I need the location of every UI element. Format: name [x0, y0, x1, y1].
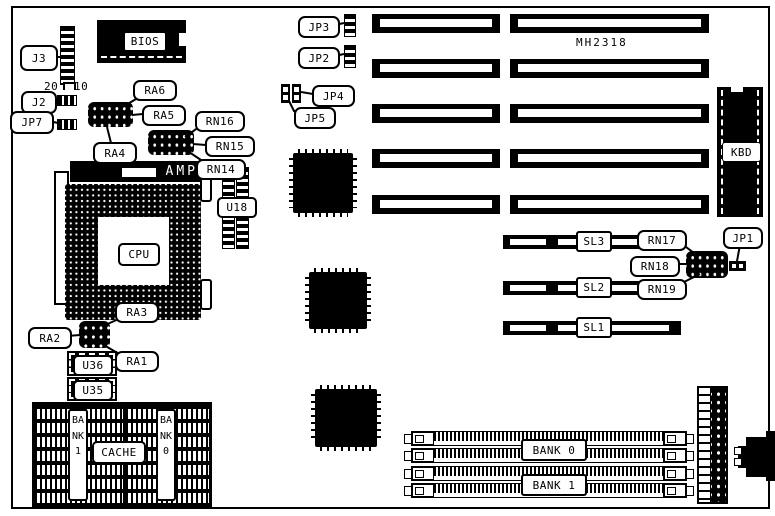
simm-bank0-label-text: BANK 0 [533, 444, 576, 457]
ra1-ra2-ra3-network [79, 321, 110, 348]
jp3-label-text: JP3 [308, 21, 329, 34]
u35-label: U35 [73, 380, 113, 401]
jp4-label: JP4 [312, 85, 355, 107]
power-connector-pins-left [699, 388, 711, 502]
rn14-label-text: RN14 [207, 163, 236, 176]
cpu-socket-key-bottom [200, 279, 212, 310]
bios-notch [179, 33, 186, 46]
zif-handle [122, 168, 156, 177]
simm-bank1-label-text: BANK 1 [533, 479, 576, 492]
simm-bank1-label: BANK 1 [521, 474, 587, 496]
cache-bank0-label: BANK 0 [156, 409, 176, 501]
sl3-label-text: SL3 [583, 235, 604, 248]
rn17-label-text: RN17 [648, 234, 677, 247]
kbd-label-text: KBD [731, 146, 752, 159]
isa-slot-2-left [372, 59, 500, 78]
u35-label-text: U35 [82, 384, 103, 397]
rn19-label-text: RN19 [648, 283, 677, 296]
sl2-label-text: SL2 [583, 281, 604, 294]
cache-label-text: CACHE [101, 446, 137, 459]
bios-label-text: BIOS [131, 35, 160, 48]
sl1-label-text: SL1 [583, 321, 604, 334]
ra2-label: RA2 [28, 327, 72, 349]
j3-label: J3 [20, 45, 58, 71]
ra2-label-text: RA2 [39, 332, 60, 345]
ra4-ra5-ra6-network [88, 102, 133, 127]
sl1-label: SL1 [576, 317, 612, 338]
isa-slot-3-left [372, 104, 500, 123]
chipset-qfp-1 [289, 149, 357, 217]
cpu-label: CPU [118, 243, 160, 266]
isa-slot-4-right [510, 149, 709, 168]
cache-bank1-label: BANK 1 [68, 409, 88, 501]
j2-label-text: J2 [32, 96, 46, 109]
u36-label-text: U36 [82, 359, 103, 372]
rn15-label-text: RN15 [216, 140, 245, 153]
jp3-label: JP3 [298, 16, 340, 38]
ra5-label-text: RA5 [153, 109, 174, 122]
jp1-label: JP1 [723, 227, 763, 249]
ra4-label-text: RA4 [104, 147, 125, 160]
rn17-rn18-rn19-network [686, 251, 728, 278]
ra3-label-text: RA3 [126, 306, 147, 319]
isa-slot-2-right [510, 59, 709, 78]
jp7-label-text: JP7 [21, 116, 42, 129]
chipset-qfp-2 [305, 268, 371, 333]
kbd-label: KBD [722, 142, 761, 162]
jp4-pins [281, 84, 290, 103]
j3-pin10-text: 10 [74, 80, 88, 93]
jp4-jp5-block [281, 84, 301, 103]
u18-label-text: U18 [226, 201, 247, 214]
zif-socket-bar: AMP [70, 161, 201, 182]
jp1-label-text: JP1 [732, 232, 753, 245]
ra3-label: RA3 [115, 302, 159, 323]
jp2-label-text: JP2 [308, 52, 329, 65]
power-connector [697, 386, 728, 504]
rn18-label-text: RN18 [641, 260, 670, 273]
cpu-label-text: CPU [128, 248, 149, 261]
isa-slot-4-left [372, 149, 500, 168]
bios-label: BIOS [123, 31, 167, 52]
jp7-label: JP7 [10, 111, 54, 134]
u18-label: U18 [217, 197, 257, 218]
isa-slot-1-left [372, 14, 500, 33]
j2-connector [57, 95, 77, 106]
isa-slot-5-left [372, 195, 500, 214]
rn16-label: RN16 [195, 111, 245, 132]
cache-label: CACHE [92, 441, 146, 464]
simm-bank0-label: BANK 0 [521, 439, 587, 461]
socket-brand-text: AMP [166, 164, 198, 179]
jp2-connector [344, 45, 356, 68]
jp5-pins [292, 84, 301, 103]
u36-label: U36 [73, 355, 113, 376]
jp2-label: JP2 [298, 47, 340, 69]
ra6-label: RA6 [133, 80, 177, 101]
j3-connector [60, 26, 75, 85]
board-model-text: MH2318 [576, 36, 628, 49]
jp5-label: JP5 [294, 107, 336, 129]
isa-slot-3-right [510, 104, 709, 123]
rn17-label: RN17 [637, 230, 687, 251]
keyboard-din-port [733, 430, 775, 485]
j3-label-text: J3 [32, 52, 46, 65]
ra5-label: RA5 [142, 105, 186, 126]
rn14-label: RN14 [196, 159, 246, 180]
jp3-connector [344, 14, 356, 37]
rn14-rn15-rn16-network [148, 130, 194, 155]
isa-slot-5-right [510, 195, 709, 214]
jp4-label-text: JP4 [323, 90, 344, 103]
isa-slot-1-right [510, 14, 709, 33]
rn15-label: RN15 [205, 136, 255, 157]
rn18-label: RN18 [630, 256, 680, 277]
chipset-qfp-3 [311, 385, 381, 451]
jp7-connector [57, 119, 77, 130]
sl2-label: SL2 [576, 277, 612, 298]
motherboard-diagram: J3 20 10 J2 JP7 BIOS RA6 RA5 RA4 RN16 RN… [0, 0, 775, 516]
ra1-label: RA1 [115, 351, 159, 372]
rn16-label-text: RN16 [206, 115, 235, 128]
jp1-connector [729, 261, 746, 271]
bios-pin-row [101, 56, 182, 58]
ra1-label-text: RA1 [126, 355, 147, 368]
sl3-label: SL3 [576, 231, 612, 252]
rn19-label: RN19 [637, 279, 687, 300]
jp5-label-text: JP5 [304, 112, 325, 125]
power-connector-pins-right [711, 388, 726, 502]
ra4-label: RA4 [93, 142, 137, 164]
ra6-label-text: RA6 [144, 84, 165, 97]
